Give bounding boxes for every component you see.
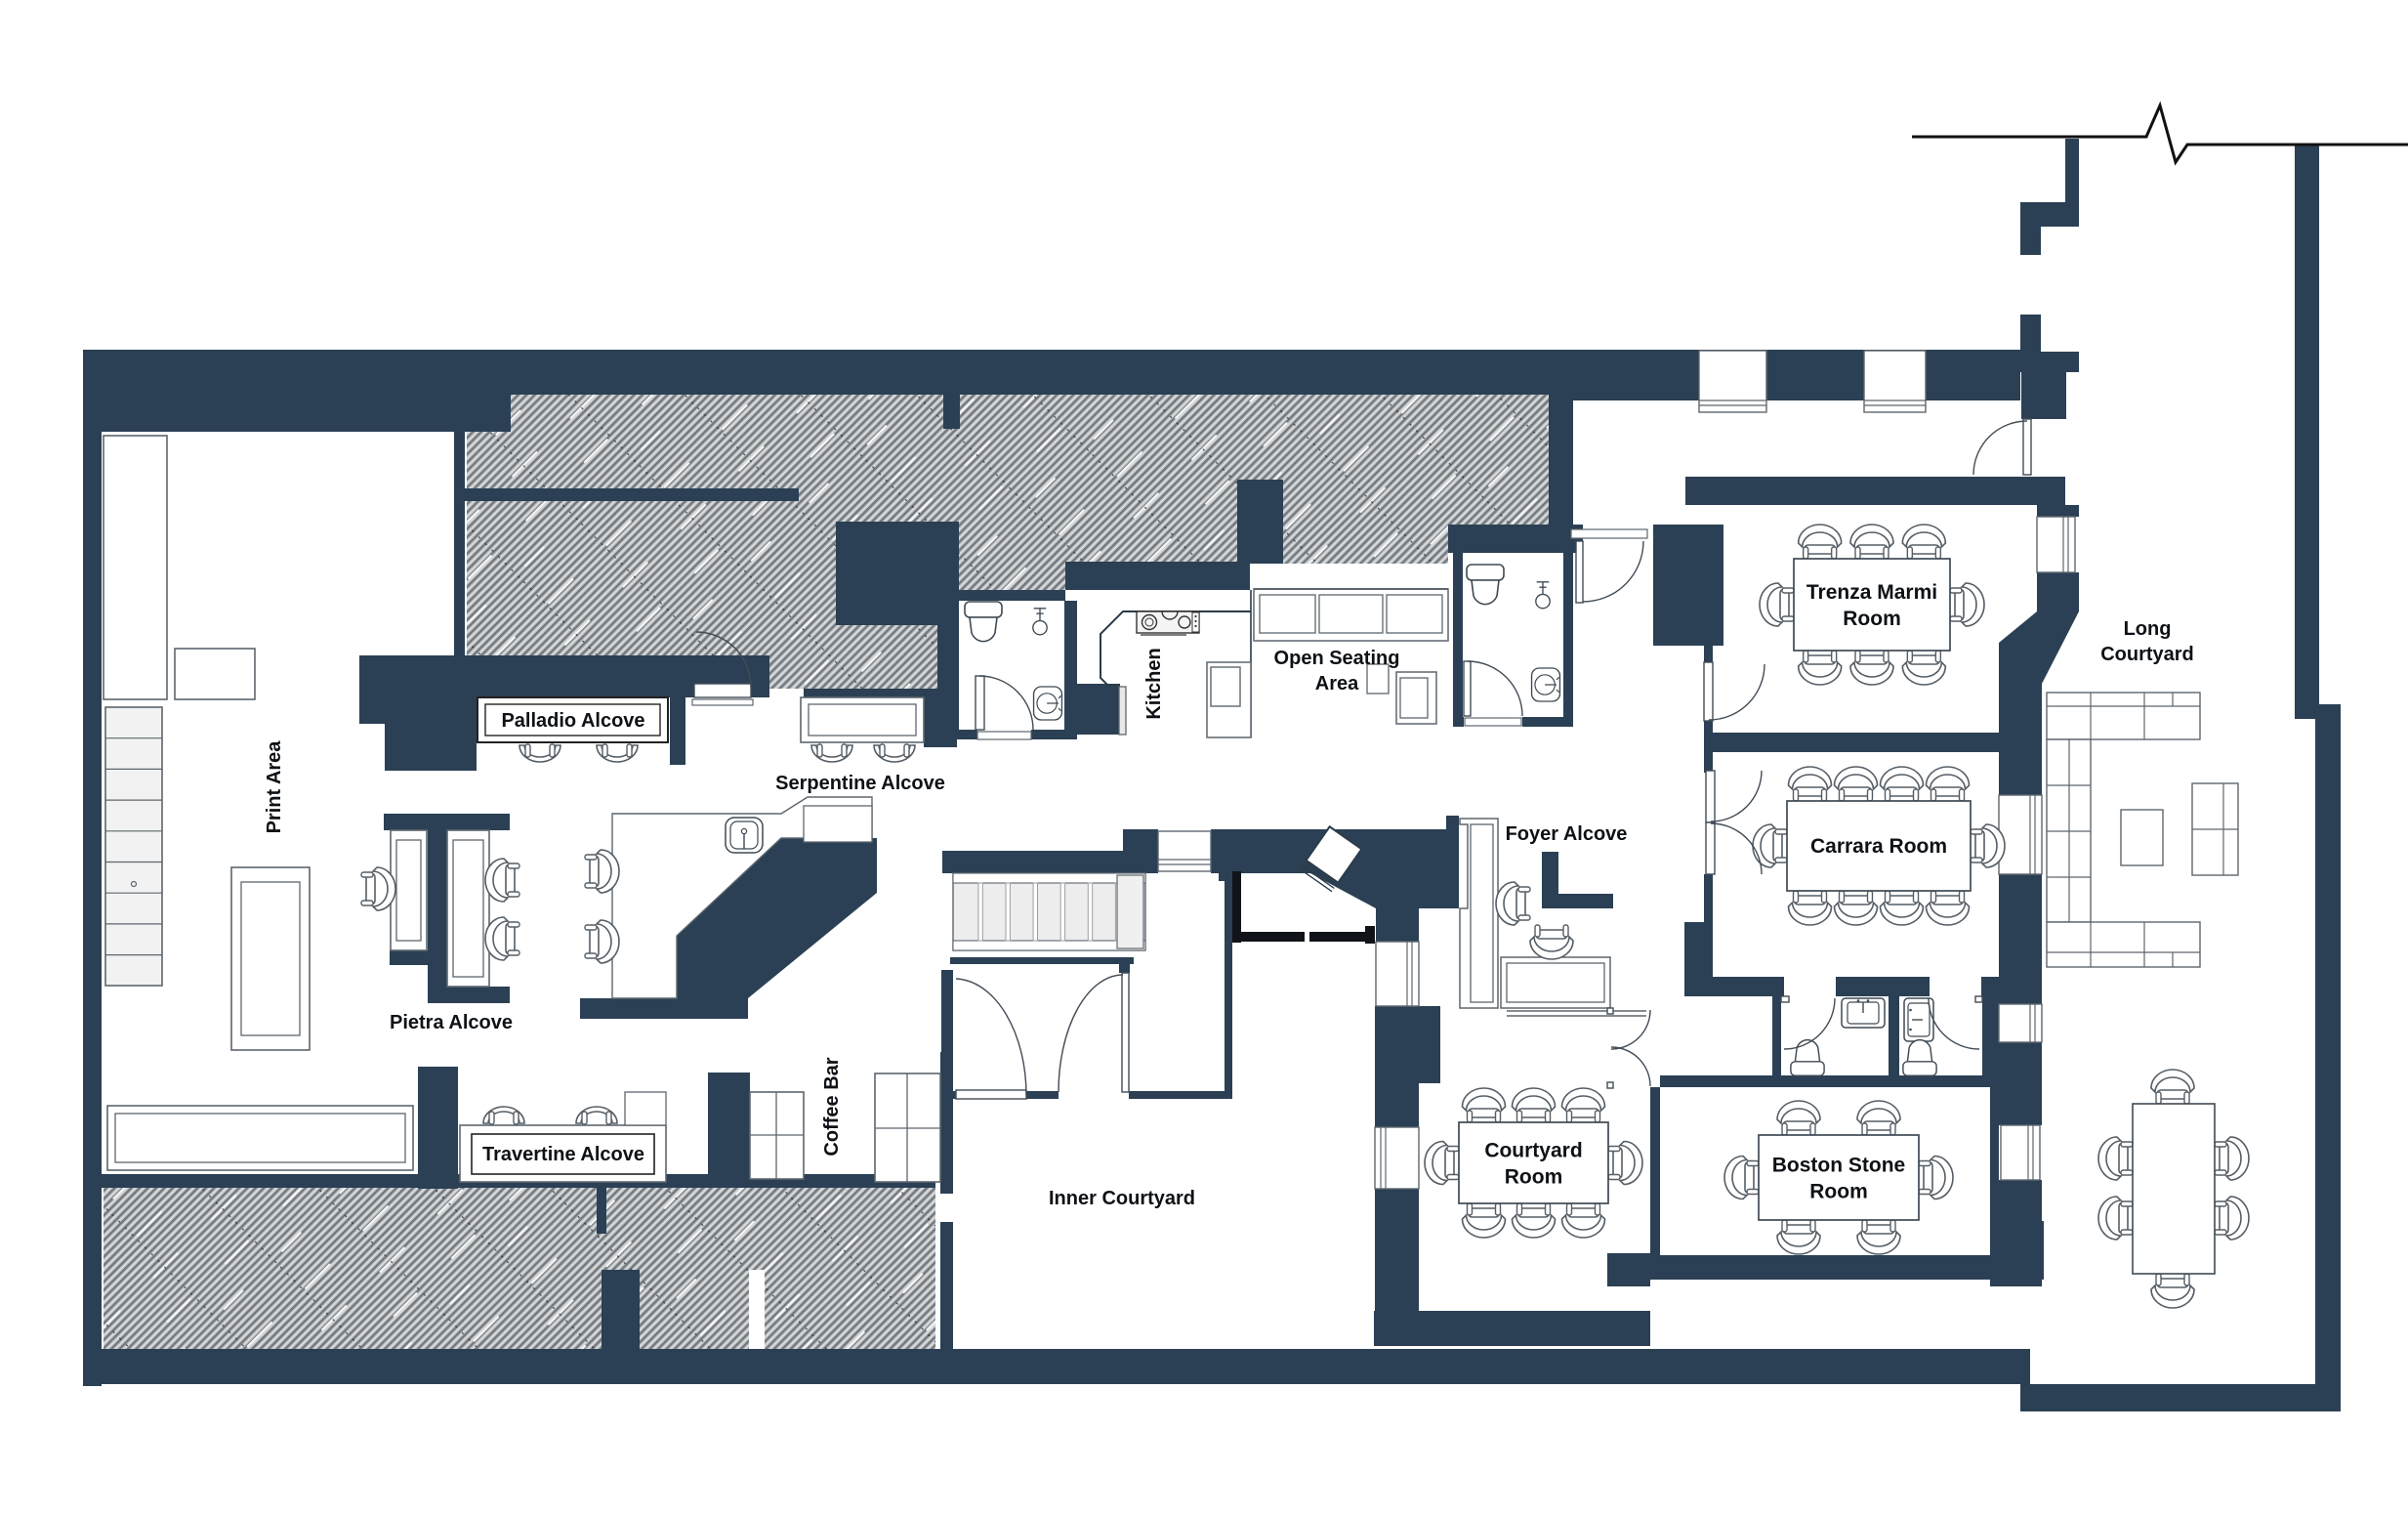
svg-text:Long: Long <box>2124 618 2172 640</box>
svg-text:Courtyard: Courtyard <box>1484 1140 1582 1162</box>
svg-text:Trenza Marmi: Trenza Marmi <box>1806 581 1937 604</box>
svg-text:Travertine Alcove: Travertine Alcove <box>482 1144 644 1165</box>
svg-text:Print Area: Print Area <box>264 740 285 834</box>
svg-text:Room: Room <box>1505 1166 1563 1189</box>
svg-text:Coffee Bar: Coffee Bar <box>821 1057 843 1156</box>
svg-text:Room: Room <box>1809 1181 1868 1203</box>
svg-text:Serpentine Alcove: Serpentine Alcove <box>775 773 945 794</box>
svg-text:Foyer Alcove: Foyer Alcove <box>1506 823 1628 845</box>
svg-text:Pietra Alcove: Pietra Alcove <box>390 1012 513 1033</box>
svg-text:Boston Stone: Boston Stone <box>1772 1155 1906 1177</box>
svg-text:Open Seating: Open Seating <box>1274 648 1400 669</box>
svg-text:Area: Area <box>1315 673 1359 694</box>
svg-text:Room: Room <box>1843 608 1901 630</box>
svg-text:Inner Courtyard: Inner Courtyard <box>1049 1188 1195 1209</box>
svg-text:Carrara Room: Carrara Room <box>1810 835 1947 858</box>
svg-text:Courtyard: Courtyard <box>2100 644 2194 665</box>
svg-text:Palladio Alcove: Palladio Alcove <box>501 710 644 732</box>
svg-text:Kitchen: Kitchen <box>1143 648 1165 719</box>
